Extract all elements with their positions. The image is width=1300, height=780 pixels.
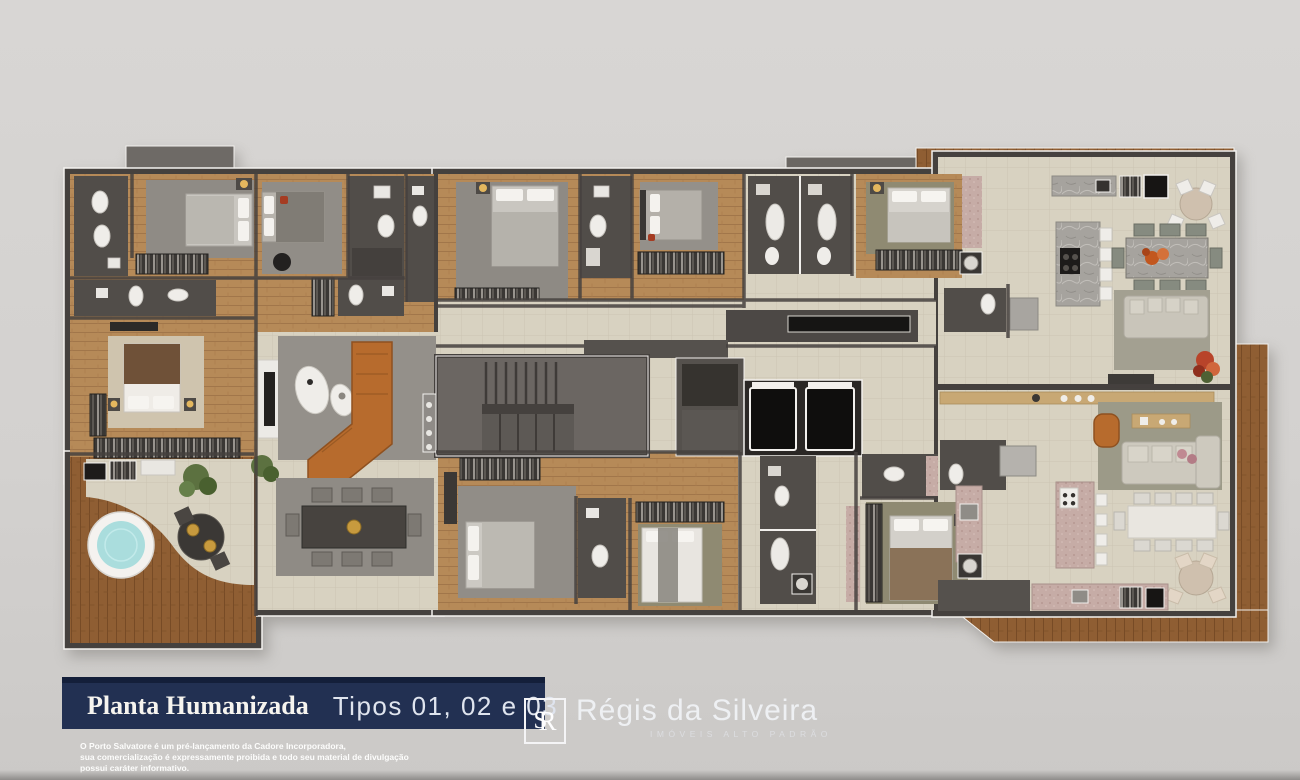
washer-1-door — [964, 256, 978, 270]
washer-3-door — [963, 559, 977, 573]
closet-rack-6 — [638, 252, 724, 274]
disclaimer-line: O Porto Salvatore é um pré-lançamento da… — [80, 741, 409, 752]
bed-3-pillow — [128, 396, 149, 409]
sink-4 — [168, 289, 188, 301]
toilet-3 — [378, 215, 394, 237]
marble-wall-2 — [846, 506, 860, 602]
service-recess — [788, 316, 910, 332]
caption-banner: Planta Humanizada Tipos 01, 02 e 03 — [62, 677, 545, 729]
grill-grate — [110, 461, 136, 480]
bed-5-pillow — [650, 216, 660, 234]
armchair-1 — [1094, 414, 1119, 447]
toilet-11 — [775, 486, 789, 506]
flowers-1 — [1142, 248, 1150, 256]
sink-11 — [768, 466, 781, 476]
bathroom-11 — [944, 288, 1006, 332]
sink-3 — [96, 288, 108, 298]
elevator-2-sill — [808, 382, 852, 387]
cushion-red-2 — [648, 234, 655, 241]
bathroom-4 — [338, 278, 404, 316]
marble-wall-3 — [926, 456, 938, 496]
elevator-2 — [806, 388, 854, 450]
toilet-7 — [590, 215, 606, 237]
tv-panel-1 — [110, 322, 158, 331]
cabinet-1 — [586, 248, 600, 266]
sink-5 — [382, 286, 394, 296]
bathroom-12 — [940, 440, 1006, 490]
decor-vase-1 — [307, 379, 313, 385]
closet-rack-1 — [136, 254, 208, 274]
closet-rack-2 — [312, 278, 334, 316]
lamp-4 — [479, 184, 487, 192]
toilet-5 — [349, 285, 363, 305]
dining-table-3 — [1128, 506, 1216, 538]
plant-1 — [179, 481, 195, 497]
toilet-8 — [765, 247, 779, 265]
vent-cabinet-2 — [1120, 587, 1142, 608]
bed-2-pillow — [264, 196, 274, 214]
elevator-1-sill — [752, 382, 794, 387]
bed-4-blanket — [492, 212, 558, 266]
shower-1 — [352, 248, 402, 276]
lamp-3 — [187, 401, 194, 408]
sink-7 — [594, 186, 609, 197]
bed-7-pillow — [468, 526, 479, 551]
elevator-1 — [750, 388, 796, 450]
bottom-shadow — [0, 770, 1300, 780]
bed-8-throw — [658, 528, 678, 602]
sink-8 — [756, 184, 770, 195]
bed-6-pillow — [921, 191, 946, 202]
bed-9-pillow — [923, 519, 948, 531]
bar-decor — [1032, 394, 1040, 402]
kitchen-sink-3 — [1072, 590, 1088, 603]
disclaimer-line: sua comercialização é expressamente proi… — [80, 752, 409, 763]
bed-6-pillow — [892, 191, 917, 202]
toilet-2 — [94, 225, 110, 247]
console-2-item — [1140, 417, 1148, 425]
bed-5-headboard — [640, 190, 646, 240]
lamp-5 — [873, 184, 881, 192]
marble-wall-1 — [962, 176, 982, 248]
stairs-lower-flight — [482, 414, 574, 452]
shower-2 — [1000, 446, 1036, 476]
floor-plan-rendering — [0, 0, 1300, 780]
toilet-1 — [92, 191, 108, 213]
placemat-1 — [187, 524, 199, 536]
bed-5 — [640, 190, 702, 240]
bed-3-pillow — [153, 396, 174, 409]
bar-sinks — [1061, 395, 1095, 402]
cushion-red-1 — [280, 196, 288, 204]
bathtub-3 — [771, 538, 789, 570]
closet-rack-7 — [876, 250, 962, 270]
toilet-9 — [817, 247, 831, 265]
decor-vase-2 — [339, 393, 346, 400]
fridge-1 — [1010, 298, 1038, 330]
toilet-6 — [413, 206, 427, 226]
tv-screen — [264, 372, 275, 426]
vent-cabinet-1 — [1120, 176, 1141, 197]
bed-1-pillow — [238, 221, 249, 241]
monogram-letter-r: R — [538, 706, 556, 737]
bed-2-pillow — [264, 218, 274, 236]
marketing-image: Planta Humanizada Tipos 01, 02 e 03 S R … — [0, 0, 1300, 780]
bed-1-pillow — [238, 198, 249, 218]
hot-tub-water — [97, 521, 145, 569]
bed-7-blanket — [482, 522, 534, 588]
sink-10 — [586, 508, 599, 518]
bathroom-3 — [74, 280, 216, 316]
bed-3-blanket — [124, 344, 180, 384]
stairs-landing — [482, 404, 574, 414]
brand-tagline: IMÓVEIS ALTO PADRÃO — [650, 729, 832, 739]
sofa-3-chaise — [1196, 436, 1220, 488]
dining-centerpiece — [347, 520, 361, 534]
toilet-12 — [884, 467, 904, 481]
vestibule-room-b — [682, 410, 738, 452]
washer-2-door — [796, 578, 808, 590]
sink-1 — [108, 258, 120, 268]
lamp-2 — [111, 401, 118, 408]
toilet-4 — [129, 286, 143, 306]
pillow-pink-2 — [1187, 454, 1197, 464]
bed-7-pillow — [468, 555, 479, 580]
brand-monogram-icon: S R — [524, 698, 566, 744]
bed-6-blanket — [888, 212, 950, 242]
sink-9 — [808, 184, 822, 195]
vestibule-room-a — [682, 364, 738, 406]
service-floor-2 — [938, 580, 1030, 611]
kitchen-sink-2 — [960, 504, 978, 520]
kitchen-sink-1 — [1096, 180, 1110, 192]
plant-3 — [1201, 371, 1213, 383]
desk-1 — [444, 472, 457, 524]
desk-chair-1 — [273, 253, 291, 271]
closet-rack-3 — [90, 394, 106, 436]
bed-9-pillow — [894, 519, 919, 531]
bed-4-pillow — [496, 189, 523, 201]
toilet-13 — [981, 294, 995, 314]
lamp-1 — [240, 180, 248, 188]
bathtub-1 — [766, 204, 784, 240]
closet-rack-9 — [636, 502, 724, 522]
wardrobe-1 — [866, 504, 882, 602]
closet-rack-8 — [460, 458, 540, 480]
plant-1 — [199, 477, 217, 495]
bed-4-pillow — [527, 189, 554, 201]
brand-lockup: Régis da Silveira IMÓVEIS ALTO PADRÃO — [576, 694, 832, 739]
sink-2 — [374, 186, 390, 198]
flowers-1 — [1157, 248, 1169, 260]
oven-tower-1 — [1144, 175, 1168, 198]
sink-6 — [412, 186, 424, 195]
bench-white — [141, 460, 175, 475]
toilet-14 — [949, 464, 963, 484]
bed-5-pillow — [650, 194, 660, 212]
cooktop-2 — [1060, 488, 1078, 508]
placemat-2 — [204, 540, 216, 552]
grill-black — [84, 463, 106, 480]
toilet-10 — [592, 545, 608, 567]
counter-pink-1 — [956, 486, 982, 562]
plan-title: Planta Humanizada — [87, 691, 309, 721]
bed-1-blanket — [186, 196, 234, 244]
brand-name: Régis da Silveira — [576, 694, 832, 728]
bathtub-2 — [818, 204, 836, 240]
oven-tower-2 — [1146, 588, 1164, 608]
pillow-pink-1 — [1177, 449, 1187, 459]
